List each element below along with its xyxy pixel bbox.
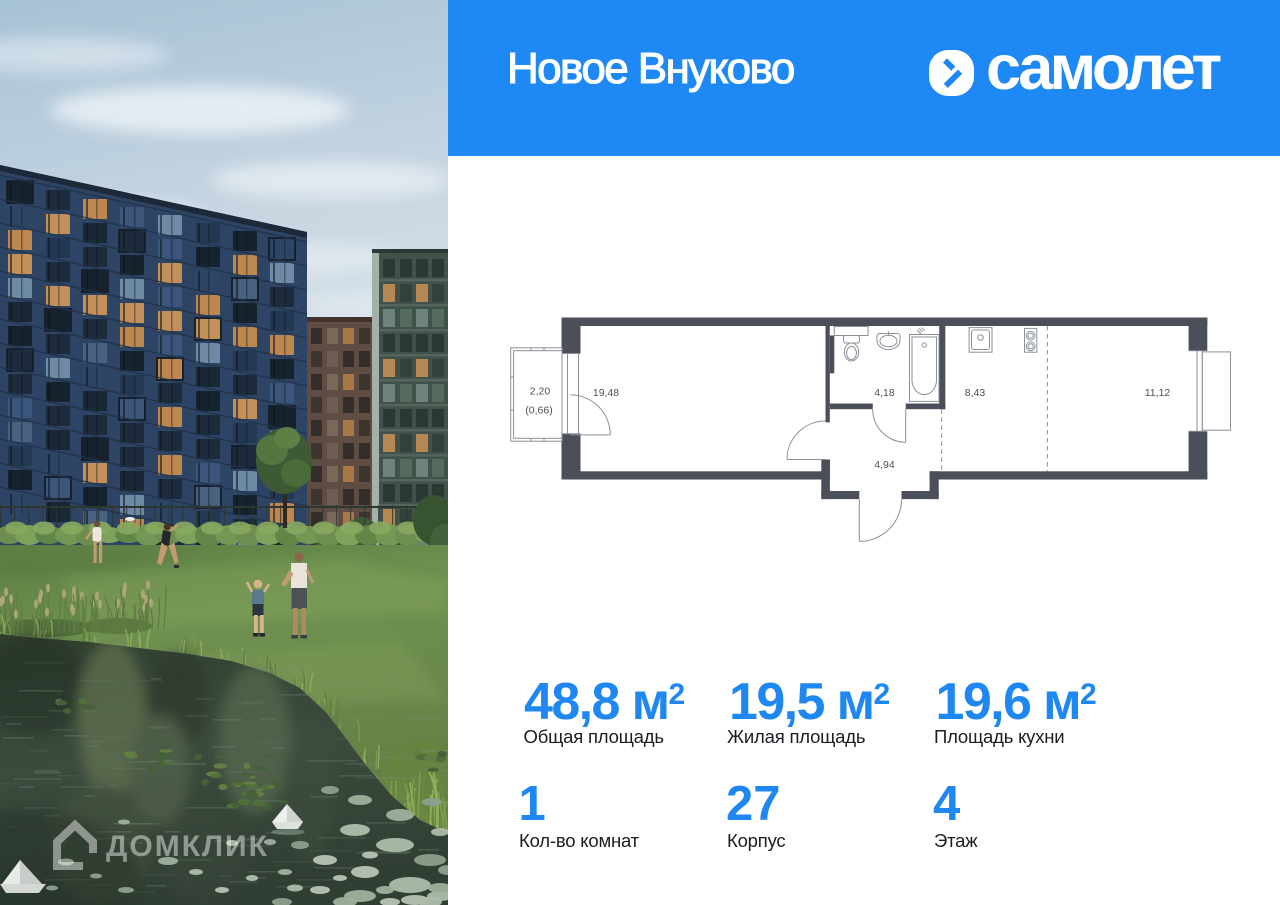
svg-text:8,43: 8,43 <box>965 387 986 399</box>
svg-text:4,18: 4,18 <box>874 387 895 399</box>
svg-text:(0,66): (0,66) <box>525 405 552 417</box>
svg-text:19,48: 19,48 <box>593 387 619 399</box>
svg-text:2,20: 2,20 <box>530 386 551 398</box>
svg-text:4,94: 4,94 <box>874 459 895 471</box>
svg-text:11,12: 11,12 <box>1145 387 1171 399</box>
